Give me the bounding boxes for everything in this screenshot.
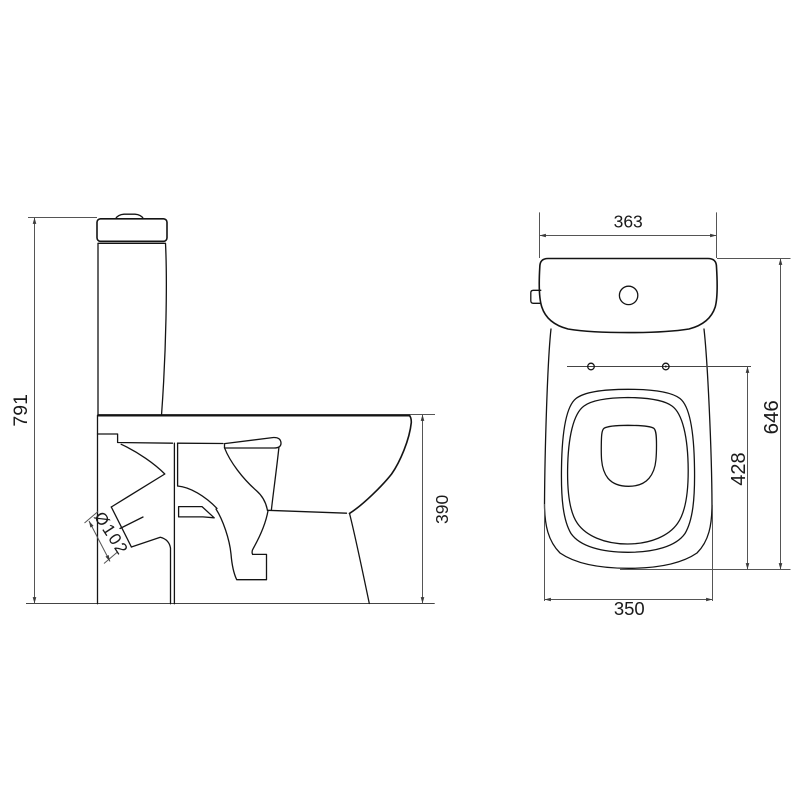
svg-text:646: 646 bbox=[760, 400, 783, 434]
svg-text:390: 390 bbox=[432, 495, 452, 524]
svg-text:791: 791 bbox=[10, 394, 32, 427]
svg-text:350: 350 bbox=[614, 598, 645, 619]
svg-text:363: 363 bbox=[614, 212, 643, 232]
svg-text:428: 428 bbox=[728, 452, 750, 485]
